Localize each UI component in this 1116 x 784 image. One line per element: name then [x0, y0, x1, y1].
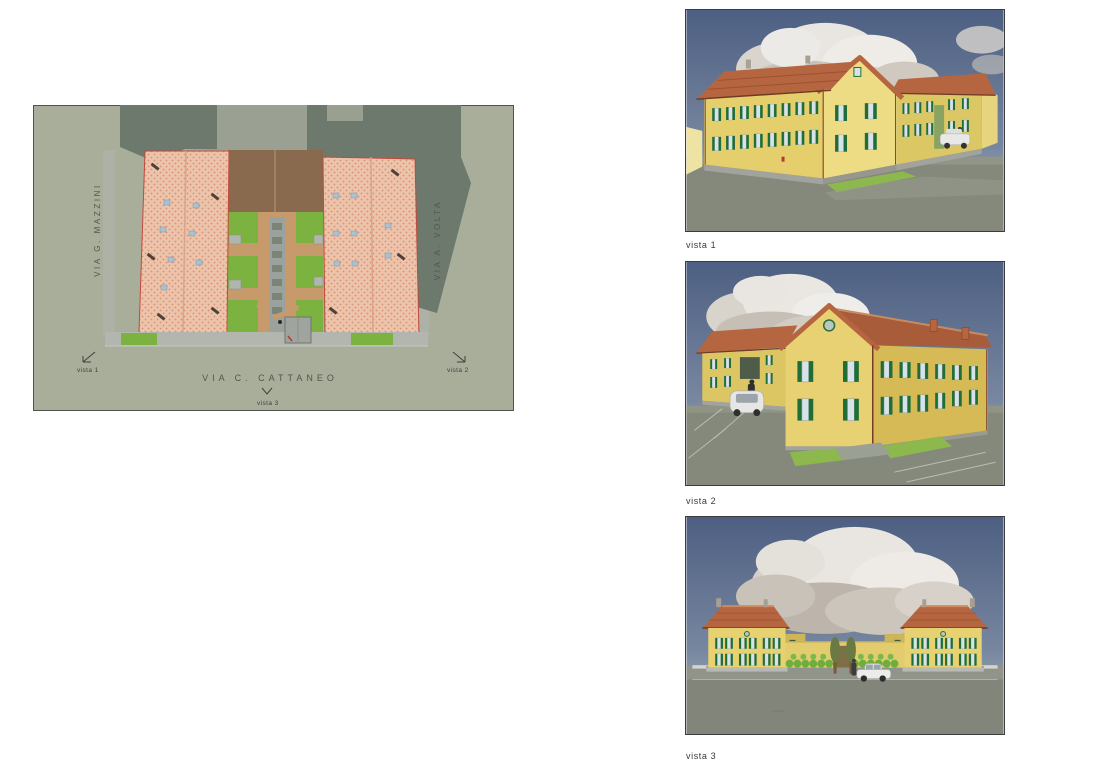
- rendering-vista-1: vista 1: [685, 9, 1005, 250]
- rendering-vista-2-image: [685, 261, 1005, 486]
- street-label-cattaneo: VIA C. CATTANEO: [202, 373, 338, 383]
- vista3-marker-label: vista 3: [257, 400, 279, 407]
- site-plan-svg: VIA G. MAZZINI VIA A. VOLTA VIA C. CATTA…: [33, 105, 514, 411]
- rendering-vista-3: vista 3: [685, 516, 1005, 761]
- rendering-vista-1-caption: vista 1: [685, 240, 1005, 250]
- rendering-vista-3-image: [685, 516, 1005, 735]
- vista2-marker-label: vista 2: [447, 367, 469, 374]
- roof-left: [139, 151, 229, 333]
- roof-right: [323, 157, 419, 335]
- rendering-vista-3-caption: vista 3: [685, 751, 1005, 761]
- courtyard: [228, 150, 323, 332]
- street-label-volta: VIA A. VOLTA: [433, 200, 442, 280]
- rendering-vista-2-caption: vista 2: [685, 496, 1005, 506]
- page: VIA G. MAZZINI VIA A. VOLTA VIA C. CATTA…: [0, 0, 1116, 784]
- building-main: [696, 56, 902, 185]
- boundary-wall: [686, 127, 702, 175]
- site-plan: VIA G. MAZZINI VIA A. VOLTA VIA C. CATTA…: [33, 105, 514, 411]
- rendering-vista-1-image: [685, 9, 1005, 232]
- hydrant-icon: [782, 157, 785, 162]
- rendering-vista-2: vista 2: [685, 261, 1005, 506]
- round-attic-window: [824, 320, 835, 331]
- person-icon: [851, 659, 856, 676]
- car-icon: [730, 391, 764, 416]
- vista1-marker-label: vista 1: [77, 367, 99, 374]
- street-label-mazzini: VIA G. MAZZINI: [93, 183, 102, 277]
